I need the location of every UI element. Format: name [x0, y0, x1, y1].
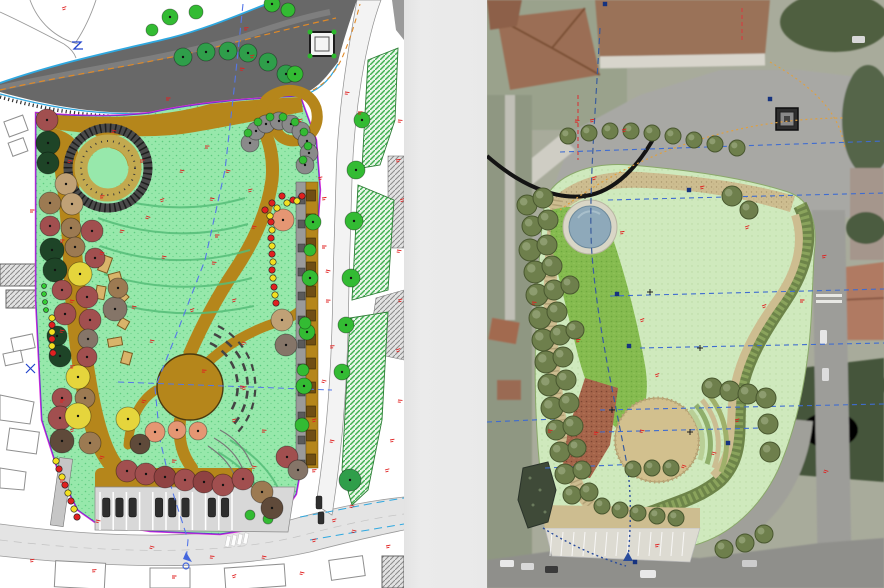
- screenshot-stage: [0, 0, 884, 588]
- panel-divider: [404, 0, 487, 588]
- monument-square-aerial: [776, 108, 798, 130]
- pond: [563, 200, 617, 254]
- aerial-overlay-panel: [487, 0, 884, 588]
- cad-plan-panel: [0, 0, 404, 588]
- monument-square: [308, 30, 337, 59]
- plaza-circle: [157, 354, 223, 420]
